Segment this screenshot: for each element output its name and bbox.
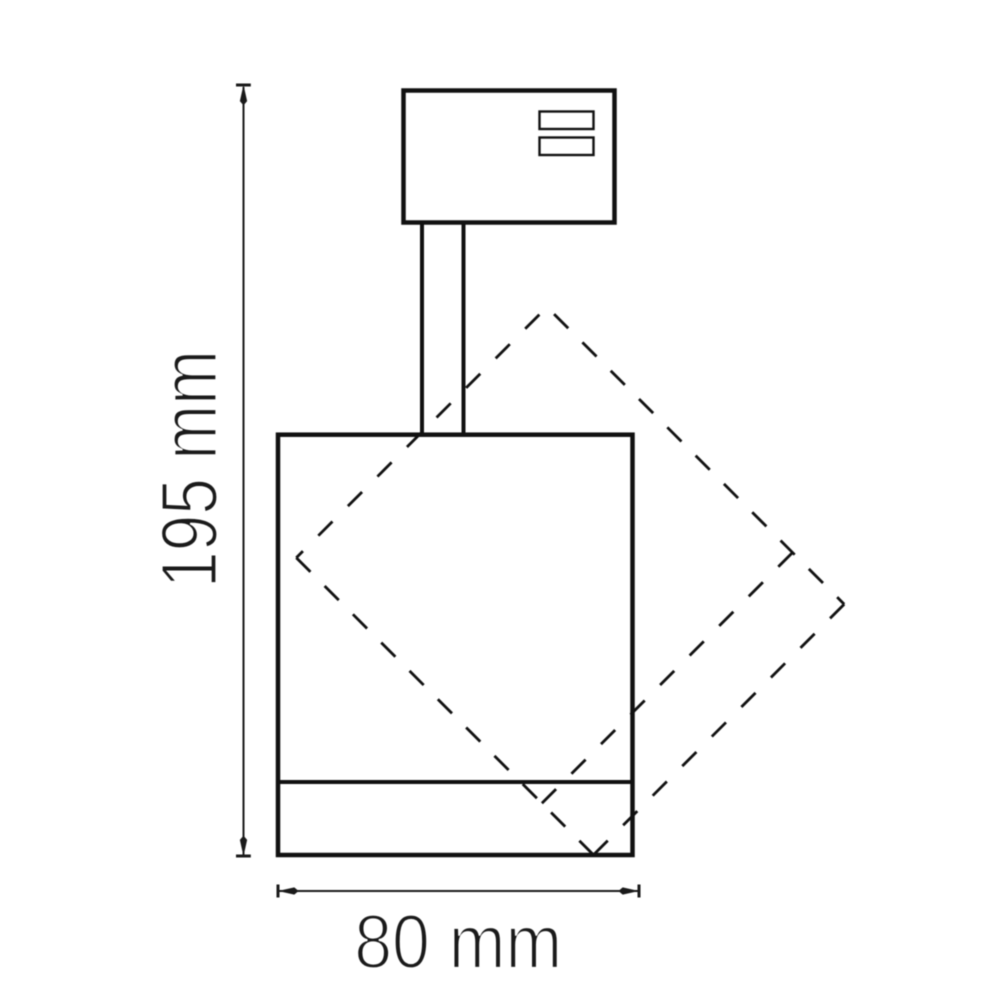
svg-text:195 mm: 195 mm [145,350,234,588]
svg-text:80 mm: 80 mm [354,900,562,985]
